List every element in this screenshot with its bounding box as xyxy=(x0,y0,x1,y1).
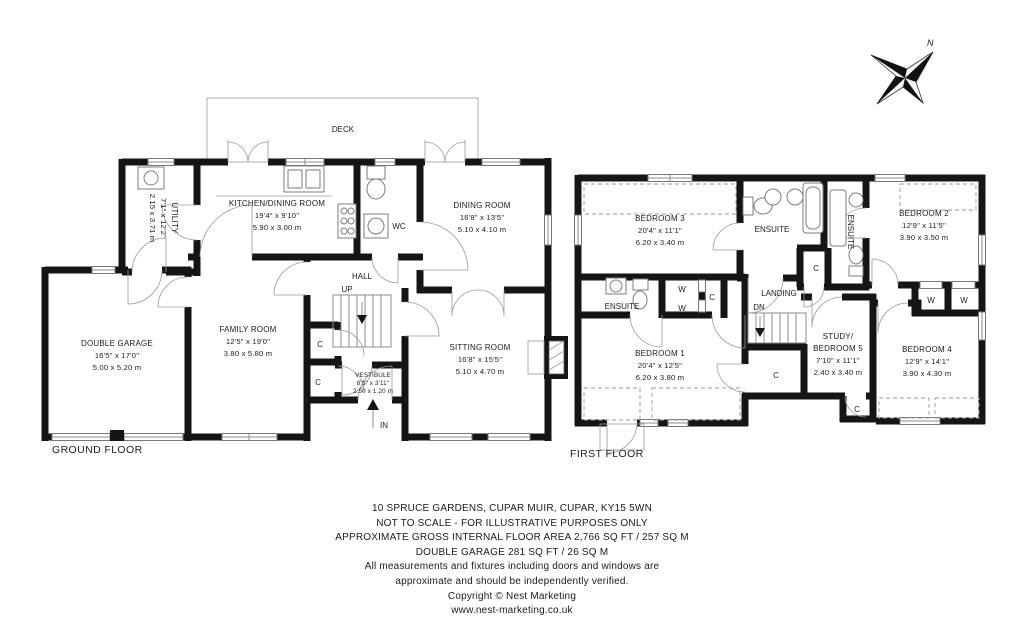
vestibule-name: VESTIBULE xyxy=(355,372,391,379)
room-label-kitchen-dining: KITCHEN/DINING ROOM 19'4" x 9'10" 5.90 x… xyxy=(229,199,325,232)
room-label-double-garage: DOUBLE GARAGE 16'5" x 17'0" 5.00 x 5.20 … xyxy=(81,339,153,372)
study-dims-m: 2.40 x 3.40 m xyxy=(814,368,863,377)
first-floor-label: FIRST FLOOR xyxy=(570,448,644,460)
family-dims-ft: 12'5" x 19'0" xyxy=(226,337,270,346)
vestibule-dims-ft: 8'3" x 3'11" xyxy=(357,380,389,387)
utility-dims-m: 2.15 x 3.71 m xyxy=(148,194,157,243)
garage-doors xyxy=(52,430,183,441)
wardrobe-w1: W xyxy=(678,285,686,294)
footer-website: www.nest-marketing.co.uk xyxy=(0,604,1024,619)
ground-closet-c1: C xyxy=(317,340,323,349)
footer-disclaimer: 10 SPRUCE GARDENS, CUPAR MUIR, CUPAR, KY… xyxy=(0,502,1024,619)
sitting-dims-ft: 16'8" x 15'5" xyxy=(458,355,502,364)
entrance-arrow: IN xyxy=(367,399,388,430)
room-label-family: FAMILY ROOM 12'5" x 19'0" 3.80 x 5.80 m xyxy=(219,325,276,358)
room-label-bedroom4: BEDROOM 4 12'9" x 14'1" 3.90 x 4.30 m xyxy=(902,345,952,378)
bedroom3-name: BEDROOM 3 xyxy=(635,214,685,223)
bedroom2-name: BEDROOM 2 xyxy=(899,209,949,218)
footer-floor-area: APPROXIMATE GROSS INTERNAL FLOOR AREA 2,… xyxy=(0,531,1024,546)
family-name: FAMILY ROOM xyxy=(219,325,276,334)
garage-name: DOUBLE GARAGE xyxy=(81,339,153,348)
bedroom1-dims-ft: 20'4" x 12'5" xyxy=(638,361,682,370)
room-label-sitting: SITTING ROOM 16'8" x 15'5" 5.10 x 4.70 m xyxy=(449,343,510,376)
room-label-bedroom3: BEDROOM 3 20'4" x 11'1" 6.20 x 3.40 m xyxy=(635,214,685,247)
first-closet-c4: C xyxy=(854,405,860,414)
room-label-bedroom1: BEDROOM 1 20'4" x 12'5" 6.20 x 3.80 m xyxy=(635,349,685,382)
compass-rose: N xyxy=(871,38,934,104)
bedroom4-name: BEDROOM 4 xyxy=(902,345,952,354)
wardrobe-w3: W xyxy=(927,296,935,305)
wardrobe-w4: W xyxy=(960,296,968,305)
kitchen-name: KITCHEN/DINING ROOM xyxy=(229,199,325,208)
garage-dims-m: 5.00 x 5.20 m xyxy=(93,363,142,372)
bedroom4-dims-m: 3.90 x 4.30 m xyxy=(903,369,952,378)
first-closet-c2: C xyxy=(709,293,715,302)
ensuite-label-2: ENSUITE xyxy=(846,215,855,250)
first-closet-c3: C xyxy=(773,371,779,380)
deck: DECK xyxy=(207,98,478,162)
footer-disclaimer-line2: approximate and should be independently … xyxy=(0,575,1024,590)
dining-dims-ft: 16'8" x 13'5" xyxy=(460,213,504,222)
utility-name: UTILITY xyxy=(170,202,179,234)
study-name-line1: STUDY/ xyxy=(823,332,854,341)
footer-not-to-scale: NOT TO SCALE - FOR ILLUSTRATIVE PURPOSES… xyxy=(0,517,1024,532)
floorplan-page: DECK UP xyxy=(0,0,1024,640)
landing-label: LANDING xyxy=(761,289,797,298)
kitchen-dims-ft: 19'4" x 9'10" xyxy=(255,211,299,220)
bedroom1-dims-m: 6.20 x 3.80 m xyxy=(636,373,685,382)
ensuite-label-1: ENSUITE xyxy=(755,225,790,234)
wc-label: WC xyxy=(392,222,406,231)
ensuite-label-3: ENSUITE xyxy=(605,302,640,311)
first-closet-c1: C xyxy=(813,264,819,273)
deck-label: DECK xyxy=(332,125,355,134)
footer-disclaimer-line1: All measurements and fixtures including … xyxy=(0,560,1024,575)
in-label: IN xyxy=(380,421,388,430)
bedroom3-dims-ft: 20'4" x 11'1" xyxy=(638,226,682,235)
family-dims-m: 3.80 x 5.80 m xyxy=(224,349,273,358)
room-label-bedroom2: BEDROOM 2 12'9" x 11'5" 3.90 x 3.50 m xyxy=(899,209,949,242)
ensuite-label-2-group: ENSUITE xyxy=(846,215,855,250)
garage-dims-ft: 16'5" x 17'0" xyxy=(95,351,139,360)
dining-dims-m: 5.10 x 4.10 m xyxy=(458,225,507,234)
stairs-down: DN xyxy=(748,303,806,343)
room-label-vestibule: VESTIBULE 8'3" x 3'11" 2.50 x 1.20 m xyxy=(353,372,393,395)
north-icon-label: N xyxy=(927,38,934,48)
ground-floor-label: GROUND FLOOR xyxy=(52,444,143,456)
bedroom1-name: BEDROOM 1 xyxy=(635,349,685,358)
up-label: UP xyxy=(341,285,352,294)
bedroom4-dims-ft: 12'9" x 14'1" xyxy=(905,357,949,366)
room-label-dining: DINING ROOM 16'8" x 13'5" 5.10 x 4.10 m xyxy=(453,201,510,234)
fireplace xyxy=(528,336,568,379)
sitting-dims-m: 5.10 x 4.70 m xyxy=(456,367,505,376)
bedroom3-dims-m: 6.20 x 3.40 m xyxy=(636,238,685,247)
study-dims-ft: 7'10" x 11'1" xyxy=(816,356,860,365)
stairs-up: UP xyxy=(333,285,391,347)
kitchen-dims-m: 5.90 x 3.00 m xyxy=(253,223,302,232)
footer-garage-area: DOUBLE GARAGE 281 SQ FT / 26 SQ M xyxy=(0,546,1024,561)
ground-closet-c2: C xyxy=(315,378,321,387)
bedroom2-dims-m: 3.90 x 3.50 m xyxy=(900,233,949,242)
wardrobe-w2: W xyxy=(678,304,686,313)
sitting-name: SITTING ROOM xyxy=(449,343,510,352)
dn-label: DN xyxy=(753,303,765,312)
bedroom2-dims-ft: 12'9" x 11'5" xyxy=(902,221,946,230)
utility-dims-ft: 7'1" x 12'2" xyxy=(159,198,168,238)
hall-label: HALL xyxy=(352,272,373,281)
study-name-line2: BEDROOM 5 xyxy=(813,344,863,353)
room-label-utility: UTILITY 7'1" x 12'2" 2.15 x 3.71 m xyxy=(148,194,179,243)
vestibule-dims-m: 2.50 x 1.20 m xyxy=(353,388,393,395)
footer-copyright: Copyright © Nest Marketing xyxy=(0,590,1024,605)
room-label-study-bedroom5: STUDY/ BEDROOM 5 7'10" x 11'1" 2.40 x 3.… xyxy=(813,332,863,377)
dining-name: DINING ROOM xyxy=(453,201,510,210)
footer-address: 10 SPRUCE GARDENS, CUPAR MUIR, CUPAR, KY… xyxy=(0,502,1024,517)
